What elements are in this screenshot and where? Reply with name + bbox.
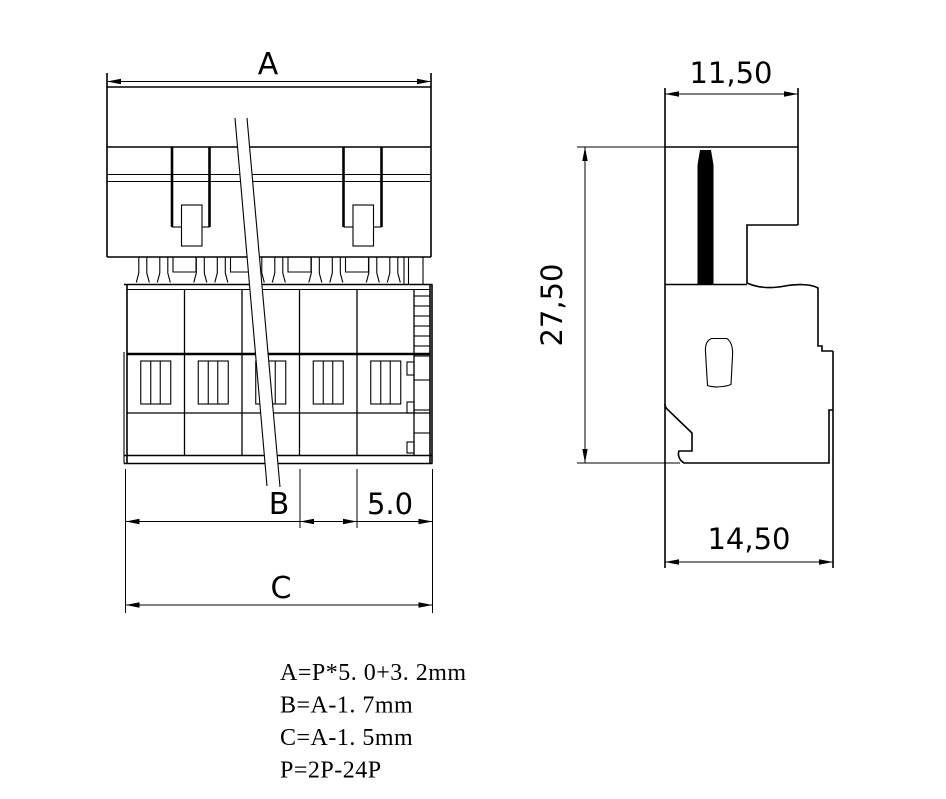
dim-pitch-label: 5.0 [367, 487, 413, 521]
dim-b-label: B [269, 487, 290, 522]
dim-bottom-width: 14,50 [665, 522, 833, 565]
dim-top-width-label: 11,50 [689, 56, 772, 90]
latch-right [344, 147, 382, 246]
formula-line-3: C=A-1. 5mm [280, 725, 413, 751]
side-outline [577, 88, 833, 568]
side-view: 11,50 27,50 14,50 [535, 56, 833, 568]
dim-c: C [126, 571, 433, 608]
formula-line-1: A=P*5. 0+3. 2mm [280, 660, 467, 686]
front-view: A B 5.0 C [107, 47, 433, 613]
formula-line-4: P=2P-24P [280, 758, 382, 784]
dim-c-label: C [271, 571, 292, 606]
technical-drawing: A B 5.0 C [0, 0, 946, 799]
formula-notes: A=P*5. 0+3. 2mm B=A-1. 7mm C=A-1. 5mm P=… [280, 660, 467, 784]
dim-a-label: A [258, 47, 279, 82]
dim-a: A [107, 47, 431, 84]
terminal-body [124, 285, 433, 464]
drawing-canvas: A B 5.0 C [0, 0, 946, 799]
dim-bottom-width-label: 14,50 [707, 522, 790, 556]
dovetail-strip [407, 296, 430, 453]
dim-height: 27,50 [535, 147, 588, 463]
formula-line-2: B=A-1. 7mm [280, 693, 413, 719]
side-inner-hole [705, 339, 732, 387]
contact-pins [136, 257, 423, 284]
latch-left [172, 147, 210, 246]
pin-solid [698, 150, 714, 284]
dim-top-width: 11,50 [665, 56, 798, 97]
dim-height-label: 27,50 [535, 263, 569, 346]
